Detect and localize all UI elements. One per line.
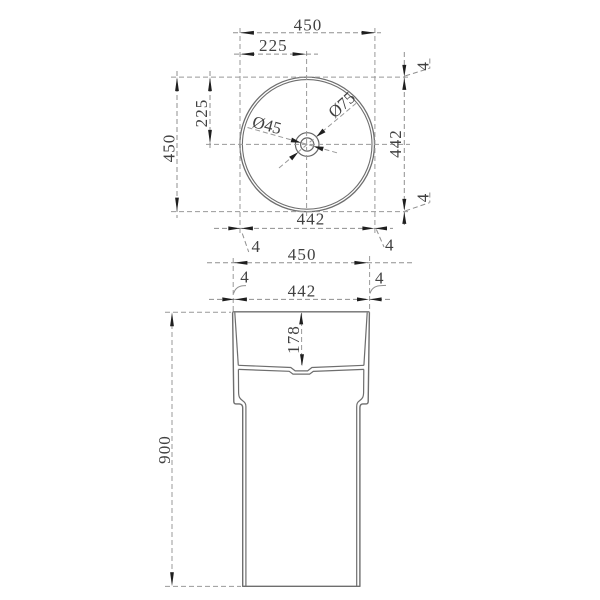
svg-text:225: 225 xyxy=(259,36,288,55)
svg-text:Ø75: Ø75 xyxy=(325,88,359,122)
svg-text:450: 450 xyxy=(288,245,317,264)
svg-text:Ø45: Ø45 xyxy=(250,112,283,138)
svg-text:450: 450 xyxy=(294,16,323,35)
svg-text:4: 4 xyxy=(413,193,432,203)
svg-text:4: 4 xyxy=(375,268,385,287)
svg-text:4: 4 xyxy=(385,236,395,255)
svg-text:225: 225 xyxy=(192,99,211,128)
svg-text:4: 4 xyxy=(240,268,250,287)
svg-text:4: 4 xyxy=(252,237,262,256)
svg-text:900: 900 xyxy=(155,435,174,464)
svg-text:450: 450 xyxy=(160,134,179,163)
svg-text:442: 442 xyxy=(386,129,405,158)
svg-text:4: 4 xyxy=(413,61,432,71)
svg-text:178: 178 xyxy=(284,325,303,354)
svg-text:442: 442 xyxy=(288,281,317,300)
svg-text:442: 442 xyxy=(297,210,326,229)
